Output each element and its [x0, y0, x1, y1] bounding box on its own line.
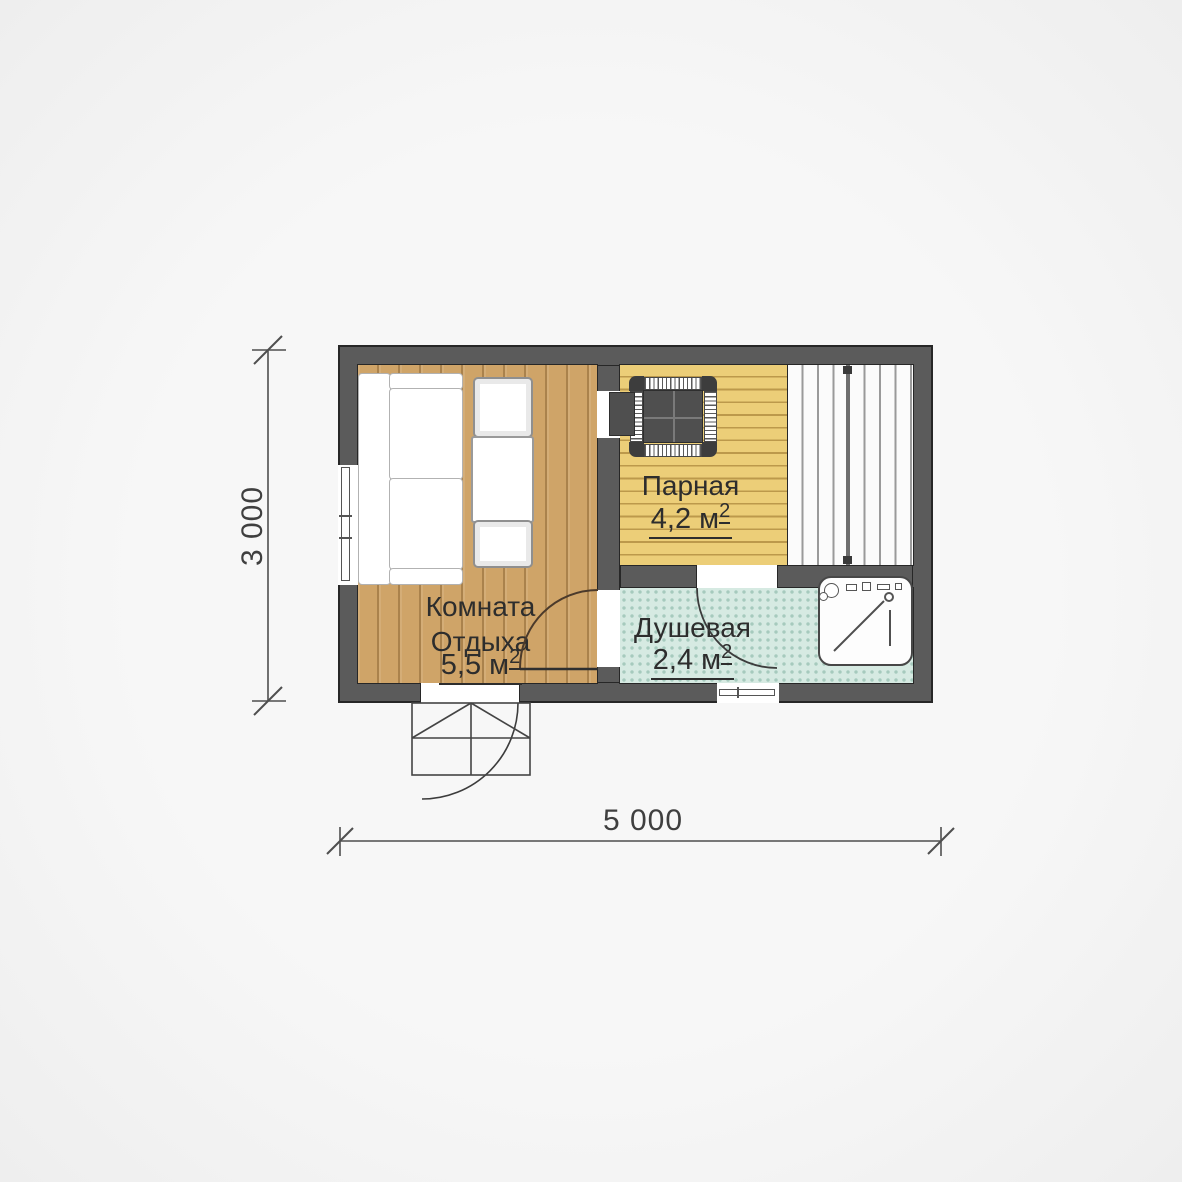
steam-room-area-value: 4,2 м	[651, 503, 719, 535]
sofa-backrest-icon	[358, 373, 391, 585]
porch-icon	[412, 703, 530, 775]
shower-window-opening	[717, 683, 779, 703]
partition-wall-horizontal-left	[620, 565, 697, 588]
stove-icon	[643, 390, 703, 443]
dim-tick	[327, 828, 353, 854]
faucet-fitting	[895, 583, 902, 590]
stove-corner	[702, 442, 717, 457]
faucet-fitting	[877, 584, 890, 590]
steam-room-area: 4,2 м2	[608, 503, 773, 539]
sofa-cushion-icon	[389, 478, 463, 570]
dim-tick	[928, 828, 954, 854]
stove-corner	[629, 376, 644, 391]
stove-corner	[629, 442, 644, 457]
stove-firebox-icon	[609, 392, 635, 436]
shower-window-icon	[719, 689, 775, 696]
dimension-width-label: 5 000	[543, 804, 743, 838]
stove-corner	[702, 376, 717, 391]
porch-step-diagonal	[412, 703, 471, 738]
sofa-cushion-icon	[389, 388, 463, 480]
shower-room-area-value: 2,4 м	[653, 644, 721, 676]
stove-rail-bottom	[644, 444, 702, 457]
shower-fitting	[819, 592, 828, 601]
steam-to-shower-door-opening	[697, 565, 777, 588]
shower-room-area: 2,4 м2	[605, 644, 780, 680]
faucet-fitting	[846, 584, 857, 591]
drain-icon	[884, 592, 894, 602]
door-swing-arc-entrance	[422, 703, 518, 799]
rest-room-area-sup: 2	[509, 646, 520, 670]
rest-room-area-value: 5,5 м	[441, 649, 509, 681]
dimension-height-label: 3 000	[236, 446, 268, 606]
stove-core-line	[644, 417, 702, 419]
floor-plan-canvas: Комната Отдыха 5,5 м2 Парная 4,2 м2 Душе…	[0, 0, 1182, 1182]
stool-icon	[473, 377, 533, 438]
steam-room-area-sup: 2	[719, 500, 730, 524]
window-mullion	[339, 515, 352, 517]
stove-rail-right	[704, 391, 717, 442]
steam-room-label: Парная	[608, 468, 773, 503]
porch-step-diagonal	[471, 703, 530, 738]
dim-tick	[254, 687, 282, 715]
dim-tick	[254, 336, 282, 364]
entrance-door-opening	[420, 683, 520, 703]
partition-wall-vertical-top	[597, 365, 620, 392]
window-mullion	[339, 537, 352, 539]
sofa-armrest-bottom-icon	[389, 568, 463, 585]
faucet-fitting	[862, 582, 871, 591]
shower-room-label: Душевая	[605, 610, 780, 645]
bench-divider-cap-bottom	[843, 556, 852, 564]
rest-room-window-opening	[338, 465, 358, 585]
stool-icon	[473, 520, 533, 568]
steam-room-name: Парная	[608, 468, 773, 503]
shower-room-name: Душевая	[605, 610, 780, 645]
porch-outline	[412, 703, 530, 775]
sauna-bench-planks	[788, 365, 913, 565]
bench-divider	[846, 365, 850, 565]
rest-room-area: 5,5 м2	[378, 649, 583, 685]
stove-rail-top	[644, 377, 702, 390]
window-mullion	[737, 687, 739, 698]
rest-room-name-line1: Комната	[378, 589, 583, 624]
bench-divider-cap-top	[843, 366, 852, 374]
shower-room-area-sup: 2	[721, 641, 732, 665]
table-icon	[471, 436, 534, 523]
rest-room-window-icon	[341, 467, 350, 581]
